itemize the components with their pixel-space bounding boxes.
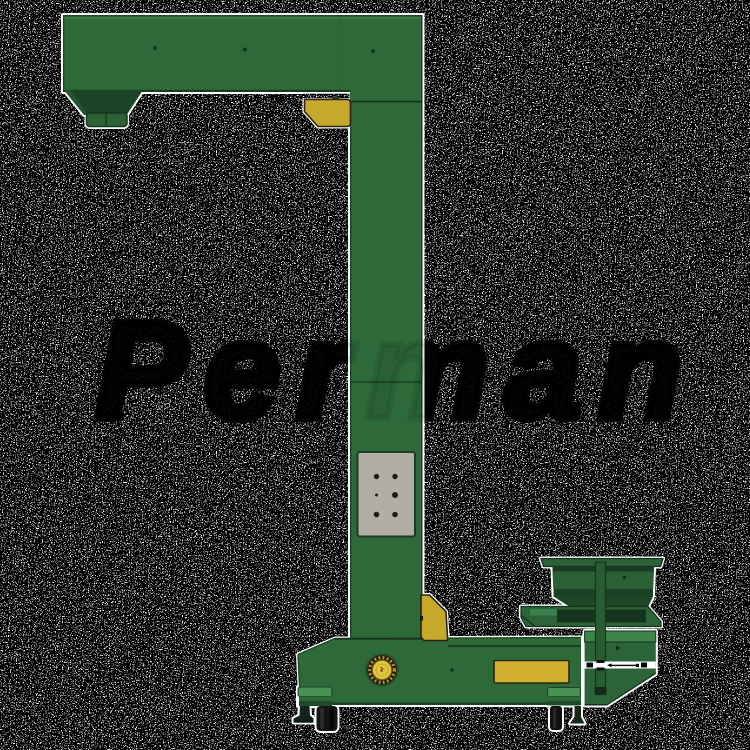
svg-text:Perman: Perman [95,293,698,448]
